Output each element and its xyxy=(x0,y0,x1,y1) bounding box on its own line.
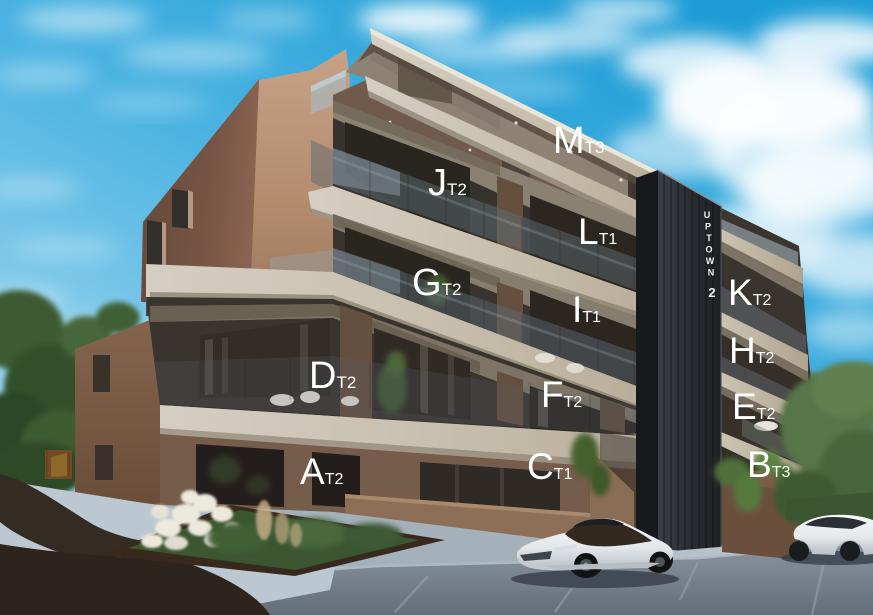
svg-text:2: 2 xyxy=(708,285,715,300)
svg-text:T: T xyxy=(706,233,712,243)
svg-text:P: P xyxy=(705,222,711,232)
svg-text:W: W xyxy=(706,256,715,266)
svg-text:U: U xyxy=(704,210,711,220)
svg-text:N: N xyxy=(708,268,715,278)
svg-text:O: O xyxy=(705,245,712,255)
